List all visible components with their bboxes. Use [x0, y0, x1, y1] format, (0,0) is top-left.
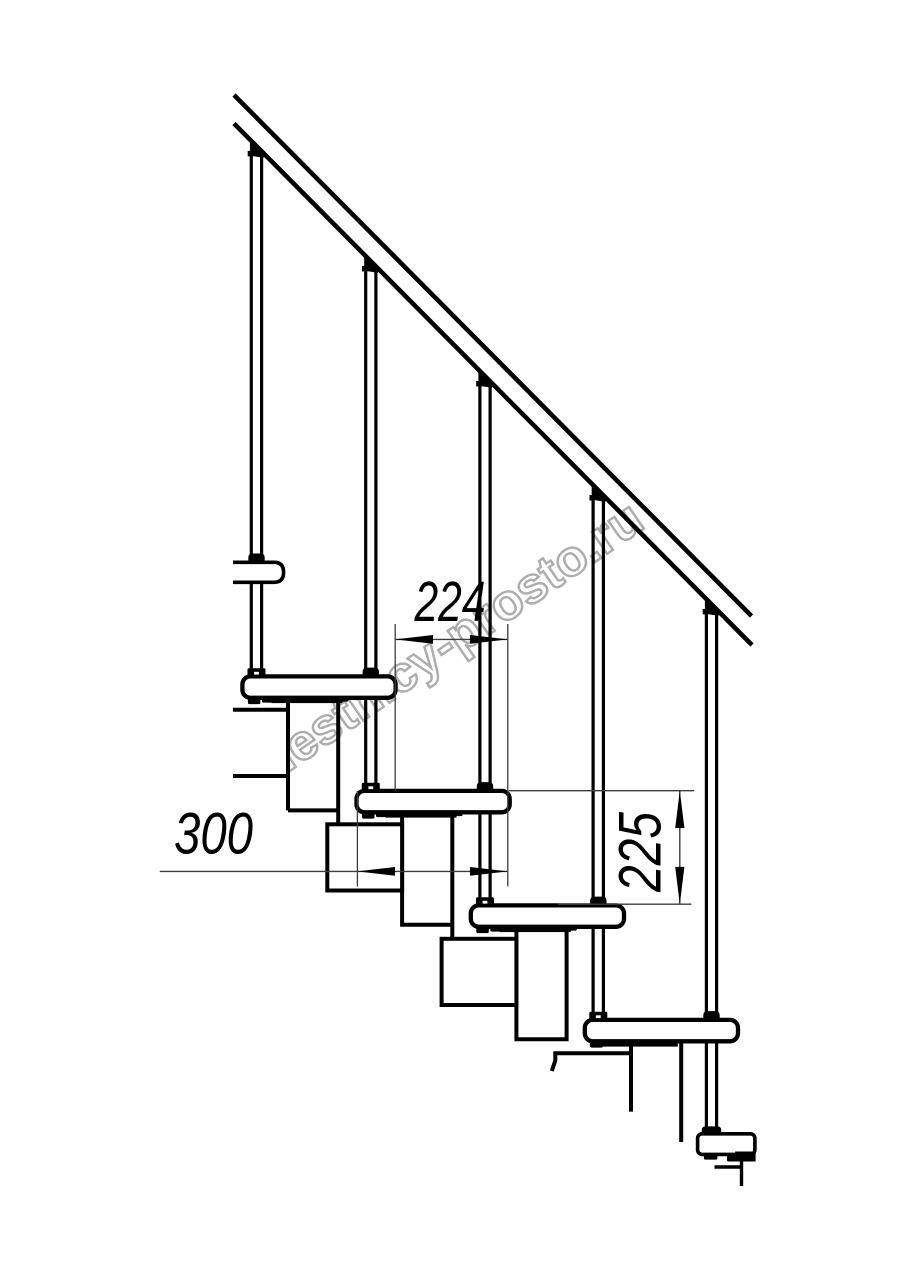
svg-text:300: 300: [174, 802, 253, 867]
svg-text:225: 225: [607, 811, 674, 892]
svg-text:224: 224: [414, 570, 486, 634]
